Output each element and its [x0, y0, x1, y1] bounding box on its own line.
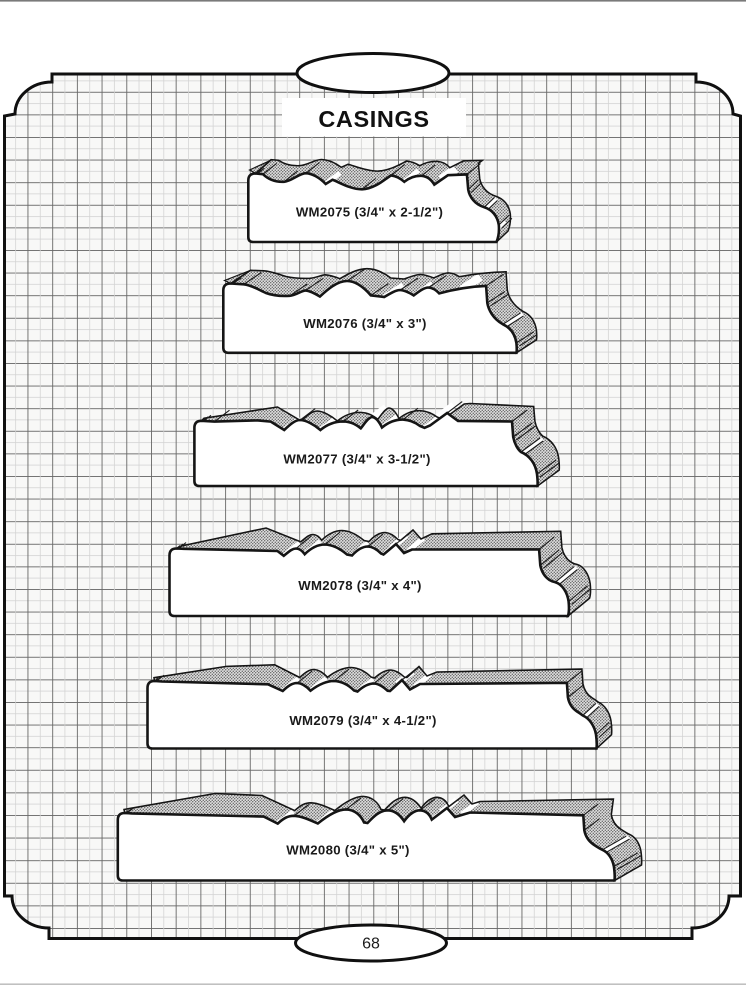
svg-text:WM2077 (3/4" x 3-1/2"): WM2077 (3/4" x 3-1/2") — [283, 452, 430, 467]
svg-text:CASINGS: CASINGS — [318, 106, 429, 132]
svg-text:WM2080 (3/4" x 5"): WM2080 (3/4" x 5") — [286, 843, 409, 858]
svg-text:WM2076 (3/4" x 3"): WM2076 (3/4" x 3") — [303, 316, 426, 331]
svg-text:WM2075 (3/4" x 2-1/2"): WM2075 (3/4" x 2-1/2") — [296, 205, 443, 220]
svg-text:WM2079 (3/4" x 4-1/2"): WM2079 (3/4" x 4-1/2") — [289, 713, 436, 728]
svg-text:68: 68 — [362, 936, 380, 953]
svg-text:WM2078 (3/4" x 4"): WM2078 (3/4" x 4") — [298, 578, 421, 593]
